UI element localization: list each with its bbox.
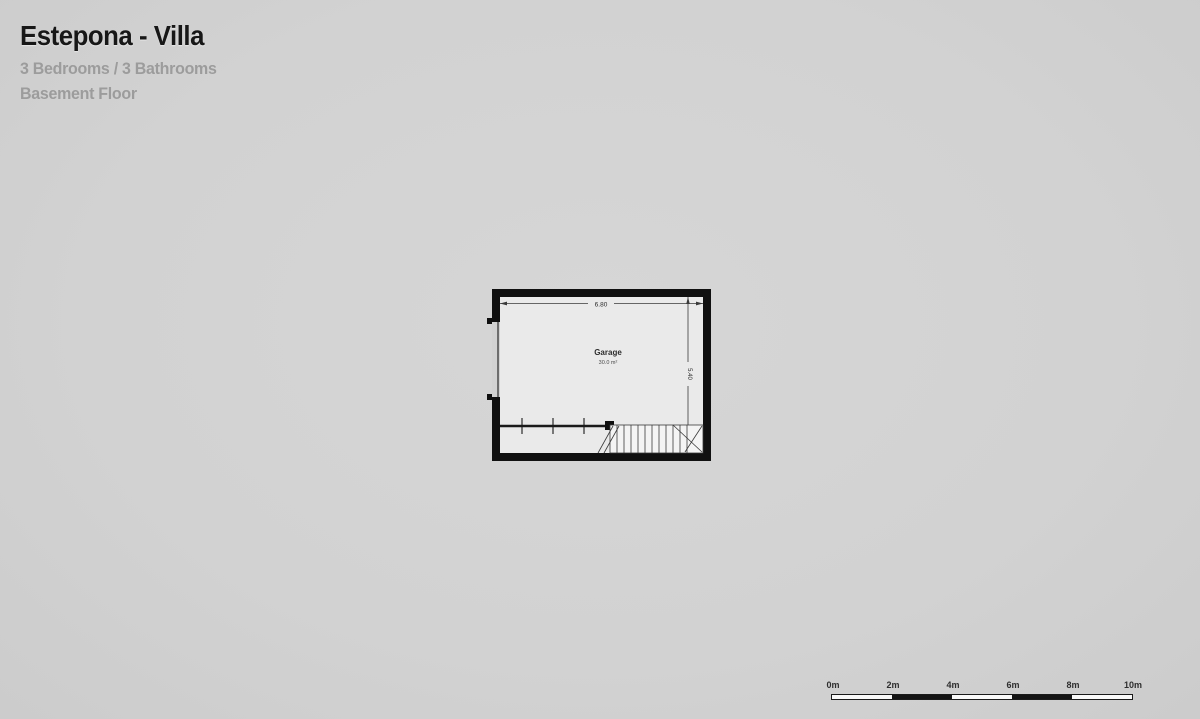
scale-label-0m: 0m bbox=[826, 680, 839, 690]
scale-bar-ruler bbox=[831, 694, 1133, 700]
staircase bbox=[610, 425, 703, 453]
scale-bar-segment bbox=[1012, 695, 1072, 699]
scale-bar-segment bbox=[892, 695, 952, 699]
page-title: Estepona - Villa bbox=[20, 20, 212, 52]
height-dimension-label: 5.40 bbox=[686, 368, 692, 380]
room-name-label: Garage bbox=[594, 348, 622, 357]
width-dimension-label: 6.80 bbox=[595, 302, 608, 309]
bed-bath-subtitle: 3 Bedrooms / 3 Bathrooms bbox=[20, 59, 217, 79]
scale-label-2m: 2m bbox=[886, 680, 899, 690]
plan-header: Estepona - Villa 3 Bedrooms / 3 Bathroom… bbox=[20, 20, 229, 104]
scale-label-8m: 8m bbox=[1066, 680, 1079, 690]
left-wall-opening bbox=[487, 318, 500, 400]
floor-plan-drawing: 6.80 5.40 Garage 30.0 m² bbox=[484, 288, 716, 462]
floor-plan: 6.80 5.40 Garage 30.0 m² bbox=[484, 288, 716, 462]
scale-label-10m: 10m bbox=[1124, 680, 1142, 690]
scale-label-6m: 6m bbox=[1006, 680, 1019, 690]
scale-bar: 0m 2m 4m 6m 8m 10m bbox=[826, 680, 1146, 706]
room-area-label: 30.0 m² bbox=[599, 360, 618, 366]
opening-jamb-top bbox=[487, 318, 492, 324]
opening-jamb-bottom bbox=[487, 394, 492, 400]
floor-name-subtitle: Basement Floor bbox=[20, 84, 217, 104]
scale-label-4m: 4m bbox=[946, 680, 959, 690]
